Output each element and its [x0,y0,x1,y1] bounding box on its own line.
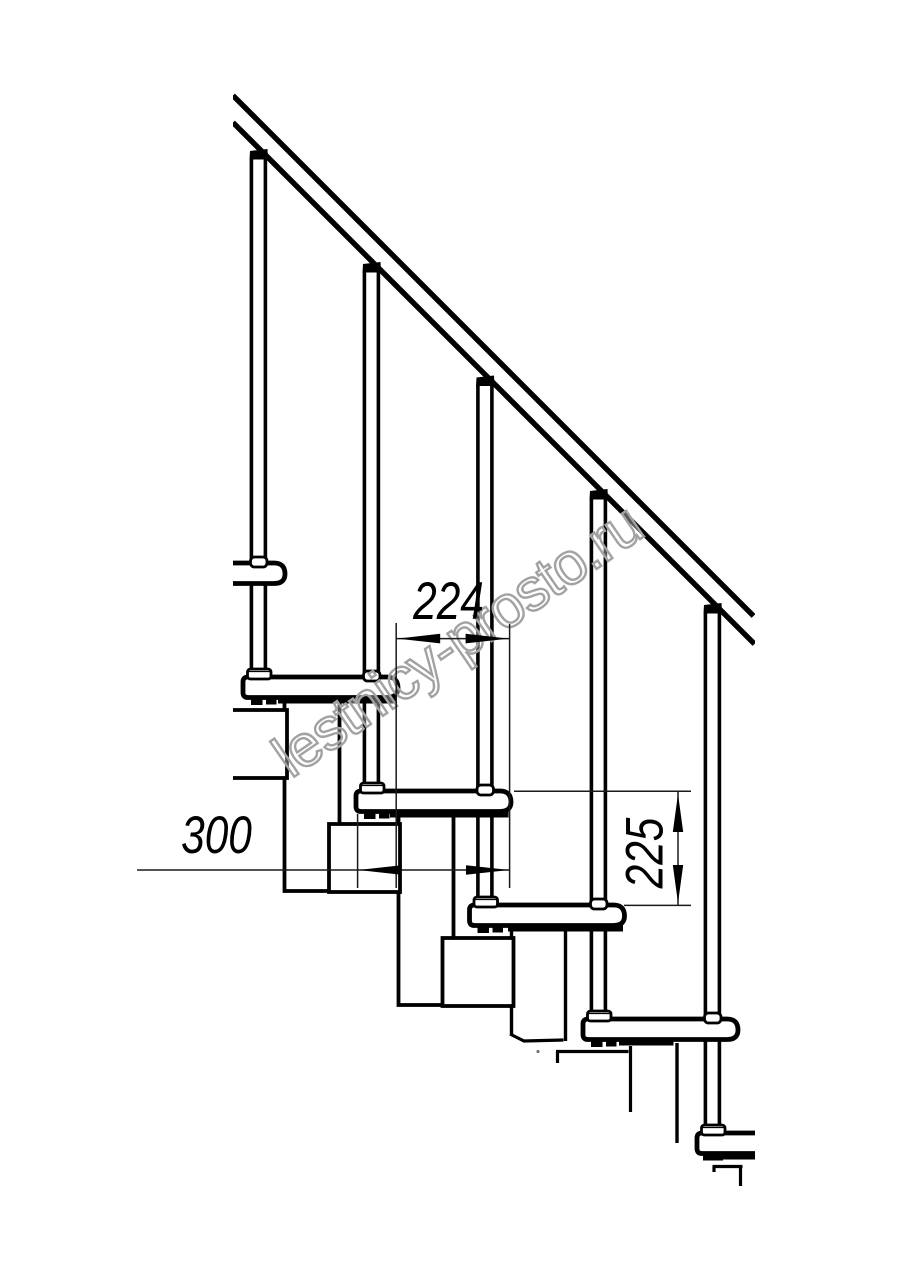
svg-text:225: 225 [616,817,675,889]
svg-text:224: 224 [412,573,484,632]
svg-text:300: 300 [181,807,252,866]
